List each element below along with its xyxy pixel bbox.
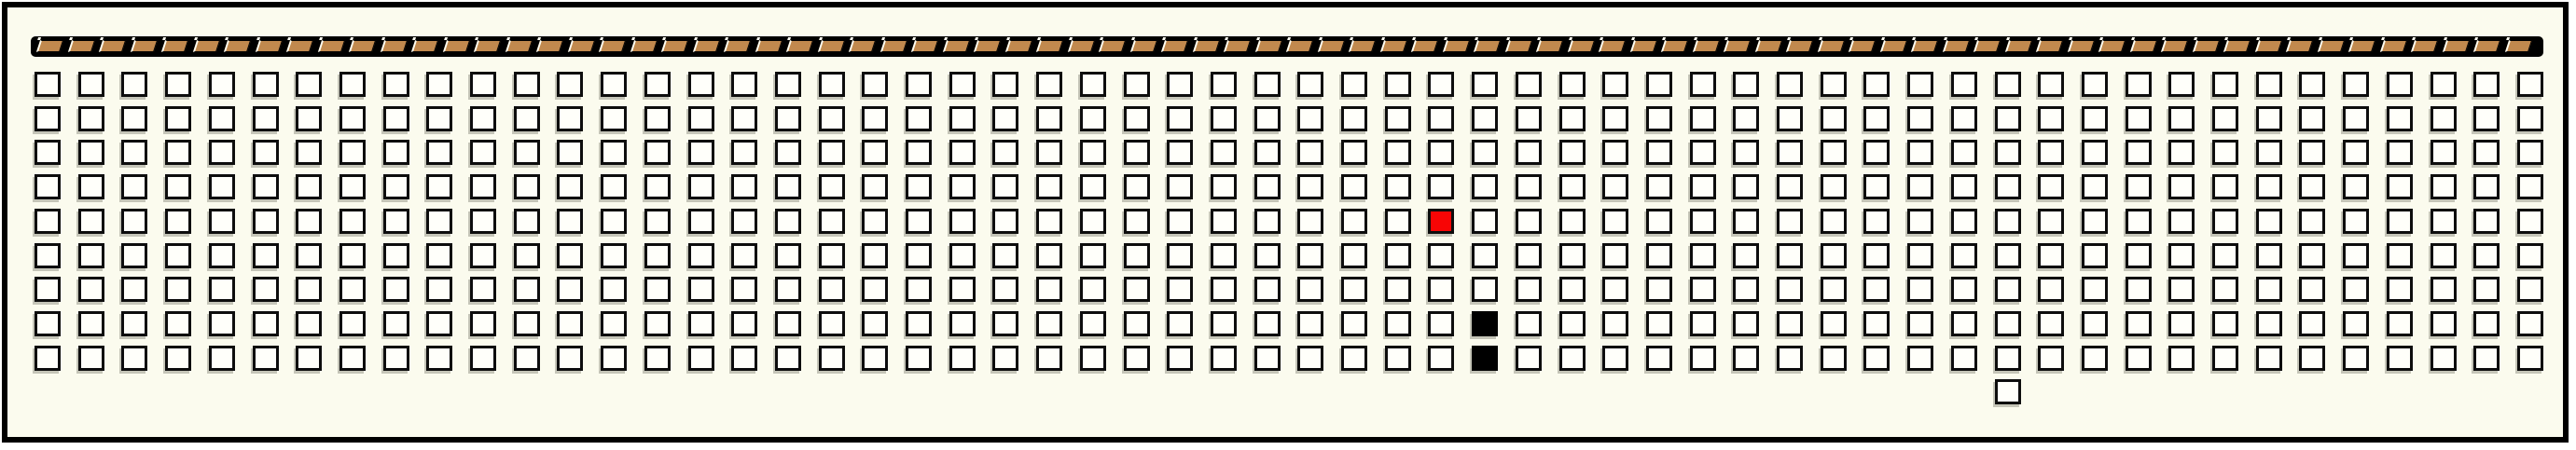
grid-cell[interactable]	[2299, 277, 2325, 302]
grid-cell[interactable]	[2343, 277, 2369, 302]
grid-cell[interactable]	[1602, 174, 1628, 199]
grid-cell[interactable]	[1472, 72, 1498, 97]
grid-cell[interactable]	[426, 209, 452, 234]
grid-cell[interactable]	[2256, 72, 2282, 97]
grid-cell[interactable]	[949, 346, 976, 371]
grid-cell[interactable]	[1297, 106, 1323, 131]
grid-cell[interactable]	[2212, 277, 2238, 302]
grid-cell[interactable]	[2256, 243, 2282, 268]
grid-cell[interactable]	[906, 209, 932, 234]
grid-cell[interactable]	[165, 277, 191, 302]
grid-cell[interactable]	[1690, 140, 1716, 165]
grid-cell[interactable]	[1211, 106, 1237, 131]
grid-cell[interactable]	[2082, 243, 2108, 268]
grid-cell[interactable]	[1036, 174, 1062, 199]
grid-cell[interactable]	[2517, 311, 2543, 336]
grid-cell[interactable]	[862, 311, 888, 336]
grid-cell[interactable]	[1341, 106, 1367, 131]
grid-cell[interactable]	[1341, 174, 1367, 199]
grid-cell[interactable]	[1646, 140, 1672, 165]
grid-cell[interactable]	[819, 140, 845, 165]
grid-cell[interactable]	[1733, 106, 1759, 131]
grid-cell[interactable]	[1907, 140, 1933, 165]
grid-cell[interactable]	[209, 243, 235, 268]
grid-cell[interactable]	[1080, 106, 1106, 131]
grid-cell[interactable]	[2256, 311, 2282, 336]
grid-cell[interactable]	[2473, 277, 2500, 302]
grid-cell[interactable]	[2343, 346, 2369, 371]
grid-cell[interactable]	[819, 311, 845, 336]
grid-cell[interactable]	[949, 311, 976, 336]
grid-cell[interactable]	[2299, 140, 2325, 165]
grid-cell[interactable]	[470, 277, 496, 302]
grid-cell[interactable]	[601, 209, 627, 234]
grid-cell[interactable]	[1863, 72, 1890, 97]
grid-cell[interactable]	[2038, 209, 2064, 234]
grid-cell[interactable]	[2082, 140, 2108, 165]
grid-cell[interactable]	[992, 72, 1018, 97]
grid-cell[interactable]	[2387, 311, 2413, 336]
grid-cell[interactable]	[1777, 209, 1803, 234]
grid-cell[interactable]	[121, 72, 147, 97]
grid-cell[interactable]	[2473, 243, 2500, 268]
grid-cell[interactable]	[296, 174, 322, 199]
grid-cell[interactable]	[209, 311, 235, 336]
grid-cell[interactable]	[1863, 346, 1890, 371]
grid-cell[interactable]	[1297, 72, 1323, 97]
grid-cell[interactable]	[2038, 243, 2064, 268]
grid-cell[interactable]	[35, 106, 61, 131]
grid-cell[interactable]	[1559, 346, 1586, 371]
grid-cell[interactable]	[1080, 277, 1106, 302]
grid-cell[interactable]	[121, 243, 147, 268]
grid-cell[interactable]	[2168, 140, 2195, 165]
grid-cell[interactable]	[1690, 311, 1716, 336]
grid-cell[interactable]	[514, 243, 540, 268]
grid-cell[interactable]	[2082, 106, 2108, 131]
grid-cell[interactable]	[514, 311, 540, 336]
grid-cell[interactable]	[644, 140, 671, 165]
grid-cell[interactable]	[2343, 311, 2369, 336]
grid-cell[interactable]	[383, 277, 409, 302]
grid-cell[interactable]	[906, 106, 932, 131]
grid-cell[interactable]	[2387, 243, 2413, 268]
grid-cell[interactable]	[1124, 346, 1150, 371]
grid-cell[interactable]	[1211, 243, 1237, 268]
grid-cell[interactable]	[557, 209, 583, 234]
grid-cell[interactable]	[1254, 106, 1281, 131]
grid-cell[interactable]	[1777, 277, 1803, 302]
grid-cell[interactable]	[2431, 243, 2457, 268]
grid-cell[interactable]	[2387, 209, 2413, 234]
grid-cell[interactable]	[731, 277, 757, 302]
grid-cell[interactable]	[2256, 209, 2282, 234]
grid-cell[interactable]	[339, 277, 366, 302]
grid-cell[interactable]	[601, 311, 627, 336]
grid-cell[interactable]	[339, 209, 366, 234]
grid-cell[interactable]	[1907, 72, 1933, 97]
grid-cell[interactable]	[775, 72, 801, 97]
grid-cell[interactable]	[1602, 311, 1628, 336]
grid-cell[interactable]	[731, 140, 757, 165]
grid-cell[interactable]	[383, 106, 409, 131]
grid-cell[interactable]	[35, 174, 61, 199]
grid-cell[interactable]	[1341, 209, 1367, 234]
grid-cell[interactable]	[1907, 346, 1933, 371]
grid-cell[interactable]	[1385, 174, 1411, 199]
grid-cell[interactable]	[470, 311, 496, 336]
grid-cell[interactable]	[775, 311, 801, 336]
grid-cell[interactable]	[165, 346, 191, 371]
grid-cell[interactable]	[339, 140, 366, 165]
grid-cell[interactable]	[121, 140, 147, 165]
grid-cell[interactable]	[253, 140, 279, 165]
grid-cell[interactable]	[557, 277, 583, 302]
grid-cell[interactable]	[1341, 346, 1367, 371]
grid-cell[interactable]	[78, 346, 104, 371]
grid-cell[interactable]	[1951, 277, 1977, 302]
grid-cell[interactable]	[1907, 277, 1933, 302]
grid-cell[interactable]	[121, 106, 147, 131]
grid-cell[interactable]	[339, 346, 366, 371]
grid-cell[interactable]	[2473, 72, 2500, 97]
grid-cell[interactable]	[2517, 140, 2543, 165]
grid-cell[interactable]	[819, 277, 845, 302]
grid-cell[interactable]	[2343, 174, 2369, 199]
grid-cell[interactable]	[165, 140, 191, 165]
grid-cell[interactable]	[1821, 140, 1847, 165]
grid-cell[interactable]	[1428, 243, 1454, 268]
grid-cell[interactable]	[2038, 72, 2064, 97]
grid-cell[interactable]	[296, 311, 322, 336]
grid-cell[interactable]	[601, 277, 627, 302]
grid-cell[interactable]	[1036, 243, 1062, 268]
grid-cell[interactable]	[1428, 140, 1454, 165]
grid-cell[interactable]	[2212, 174, 2238, 199]
grid-cell[interactable]	[78, 209, 104, 234]
grid-cell[interactable]	[2126, 346, 2152, 371]
grid-cell[interactable]	[906, 72, 932, 97]
grid-cell[interactable]	[470, 72, 496, 97]
grid-cell[interactable]	[2126, 72, 2152, 97]
grid-cell[interactable]	[296, 106, 322, 131]
grid-cell[interactable]	[470, 209, 496, 234]
grid-cell[interactable]	[1821, 277, 1847, 302]
grid-cell[interactable]	[1777, 311, 1803, 336]
grid-cell[interactable]	[1733, 311, 1759, 336]
grid-cell[interactable]	[121, 209, 147, 234]
grid-cell[interactable]	[35, 346, 61, 371]
grid-cell[interactable]	[1297, 277, 1323, 302]
grid-cell[interactable]	[1080, 209, 1106, 234]
grid-cell[interactable]	[78, 277, 104, 302]
grid-cell[interactable]	[731, 72, 757, 97]
grid-cell[interactable]	[644, 277, 671, 302]
grid-cell[interactable]	[688, 277, 714, 302]
grid-cell[interactable]	[688, 72, 714, 97]
grid-cell[interactable]	[209, 140, 235, 165]
grid-cell[interactable]	[1646, 346, 1672, 371]
grid-cell[interactable]	[906, 311, 932, 336]
grid-cell[interactable]	[2168, 106, 2195, 131]
grid-cell[interactable]	[35, 277, 61, 302]
grid-cell[interactable]	[1124, 209, 1150, 234]
grid-cell[interactable]	[121, 277, 147, 302]
grid-cell[interactable]	[296, 243, 322, 268]
grid-cell[interactable]	[165, 243, 191, 268]
grid-cell[interactable]	[1211, 140, 1237, 165]
grid-cell[interactable]	[644, 243, 671, 268]
grid-cell[interactable]	[1559, 140, 1586, 165]
grid-cell[interactable]	[1516, 174, 1542, 199]
grid-cell[interactable]	[1995, 106, 2021, 131]
grid-cell[interactable]	[1341, 140, 1367, 165]
grid-cell[interactable]	[1777, 72, 1803, 97]
grid-cell[interactable]	[731, 346, 757, 371]
grid-cell[interactable]	[1036, 346, 1062, 371]
grid-cell[interactable]	[383, 140, 409, 165]
grid-cell[interactable]	[2038, 311, 2064, 336]
grid-cell[interactable]	[78, 140, 104, 165]
grid-cell[interactable]	[1863, 243, 1890, 268]
grid-cell[interactable]	[1995, 277, 2021, 302]
grid-cell[interactable]	[1472, 243, 1498, 268]
grid-cell[interactable]	[992, 277, 1018, 302]
grid-cell[interactable]	[514, 277, 540, 302]
grid-cell[interactable]	[296, 346, 322, 371]
grid-cell[interactable]	[78, 243, 104, 268]
grid-cell[interactable]	[1036, 72, 1062, 97]
grid-cell[interactable]	[121, 346, 147, 371]
grid-cell[interactable]	[253, 243, 279, 268]
grid-cell[interactable]	[1516, 140, 1542, 165]
grid-cell[interactable]	[1951, 209, 1977, 234]
grid-cell[interactable]	[426, 72, 452, 97]
grid-cell[interactable]	[2343, 106, 2369, 131]
grid-cell[interactable]	[1254, 174, 1281, 199]
grid-cell[interactable]	[1254, 311, 1281, 336]
grid-cell[interactable]	[209, 174, 235, 199]
grid-cell[interactable]	[1821, 346, 1847, 371]
grid-cell[interactable]	[1080, 243, 1106, 268]
grid-cell[interactable]	[1602, 106, 1628, 131]
grid-cell[interactable]	[78, 72, 104, 97]
grid-cell[interactable]	[1516, 311, 1542, 336]
grid-cell[interactable]	[2168, 174, 2195, 199]
grid-cell[interactable]	[470, 106, 496, 131]
grid-cell[interactable]	[2343, 209, 2369, 234]
grid-cell[interactable]	[2343, 72, 2369, 97]
grid-cell[interactable]	[1733, 346, 1759, 371]
grid-cell[interactable]	[1385, 311, 1411, 336]
grid-cell[interactable]	[1951, 311, 1977, 336]
grid-cell[interactable]	[1559, 209, 1586, 234]
grid-cell[interactable]	[1472, 106, 1498, 131]
grid-cell[interactable]	[1559, 106, 1586, 131]
grid-cell[interactable]	[731, 209, 757, 234]
grid-cell[interactable]	[1211, 209, 1237, 234]
grid-cell[interactable]	[819, 209, 845, 234]
grid-cell[interactable]	[906, 346, 932, 371]
grid-cell[interactable]	[1821, 243, 1847, 268]
grid-cell[interactable]	[949, 140, 976, 165]
grid-cell[interactable]	[1516, 72, 1542, 97]
grid-cell[interactable]	[1995, 243, 2021, 268]
grid-cell[interactable]	[253, 346, 279, 371]
grid-cell[interactable]	[1080, 140, 1106, 165]
grid-cell[interactable]	[339, 106, 366, 131]
grid-cell[interactable]	[1341, 311, 1367, 336]
grid-cell[interactable]	[1167, 72, 1193, 97]
grid-cell[interactable]	[1559, 277, 1586, 302]
grid-cell[interactable]	[1559, 174, 1586, 199]
grid-cell[interactable]	[253, 311, 279, 336]
grid-cell[interactable]	[2082, 72, 2108, 97]
grid-cell[interactable]	[2256, 174, 2282, 199]
grid-cell[interactable]	[1863, 140, 1890, 165]
grid-cell[interactable]	[296, 209, 322, 234]
grid-cell[interactable]	[2387, 106, 2413, 131]
grid-cell[interactable]	[253, 106, 279, 131]
grid-cell[interactable]	[2473, 311, 2500, 336]
grid-cell[interactable]	[2126, 243, 2152, 268]
grid-cell[interactable]	[688, 209, 714, 234]
grid-cell[interactable]	[339, 243, 366, 268]
grid-cell[interactable]	[2517, 174, 2543, 199]
grid-cell[interactable]	[1951, 243, 1977, 268]
grid-cell[interactable]	[426, 277, 452, 302]
grid-cell[interactable]	[470, 174, 496, 199]
grid-cell[interactable]	[1211, 346, 1237, 371]
grid-cell[interactable]	[1690, 209, 1716, 234]
grid-cell[interactable]	[1690, 346, 1716, 371]
grid-cell[interactable]	[1907, 209, 1933, 234]
grid-cell[interactable]	[688, 243, 714, 268]
grid-cell[interactable]	[2082, 346, 2108, 371]
grid-cell[interactable]	[1080, 311, 1106, 336]
grid-cell[interactable]	[862, 277, 888, 302]
grid-cell[interactable]	[862, 72, 888, 97]
grid-cell[interactable]	[1516, 106, 1542, 131]
grid-cell[interactable]	[557, 72, 583, 97]
grid-cell[interactable]	[1036, 209, 1062, 234]
grid-cell[interactable]	[339, 174, 366, 199]
grid-cell[interactable]	[2473, 209, 2500, 234]
grid-cell[interactable]	[2168, 72, 2195, 97]
grid-cell[interactable]	[644, 106, 671, 131]
grid-cell[interactable]	[2168, 209, 2195, 234]
grid-cell[interactable]	[2431, 174, 2457, 199]
grid-cell[interactable]	[2517, 72, 2543, 97]
grid-cell[interactable]	[2473, 346, 2500, 371]
grid-cell[interactable]	[1254, 243, 1281, 268]
grid-cell[interactable]	[514, 106, 540, 131]
grid-cell[interactable]	[1907, 243, 1933, 268]
grid-cell[interactable]	[601, 243, 627, 268]
grid-cell[interactable]	[2212, 209, 2238, 234]
grid-cell[interactable]	[470, 140, 496, 165]
grid-cell[interactable]	[601, 106, 627, 131]
grid-cell[interactable]	[383, 243, 409, 268]
grid-cell[interactable]	[121, 311, 147, 336]
grid-cell[interactable]	[1602, 140, 1628, 165]
grid-cell[interactable]	[514, 346, 540, 371]
grid-cell[interactable]	[383, 174, 409, 199]
grid-cell[interactable]	[2126, 209, 2152, 234]
grid-cell[interactable]	[1472, 277, 1498, 302]
grid-cell[interactable]	[1821, 311, 1847, 336]
grid-cell[interactable]	[1646, 72, 1672, 97]
grid-cell[interactable]	[819, 174, 845, 199]
grid-cell[interactable]	[557, 346, 583, 371]
grid-cell[interactable]	[35, 140, 61, 165]
grid-cell[interactable]	[1428, 106, 1454, 131]
grid-cell[interactable]	[2431, 311, 2457, 336]
grid-cell[interactable]	[688, 140, 714, 165]
grid-cell[interactable]	[514, 72, 540, 97]
grid-cell[interactable]	[644, 209, 671, 234]
grid-cell[interactable]	[1428, 311, 1454, 336]
grid-cell[interactable]	[949, 174, 976, 199]
grid-cell[interactable]	[601, 140, 627, 165]
grid-cell[interactable]	[1385, 346, 1411, 371]
grid-cell[interactable]	[1297, 346, 1323, 371]
grid-cell[interactable]	[1211, 277, 1237, 302]
grid-cell[interactable]	[992, 311, 1018, 336]
grid-cell[interactable]	[339, 311, 366, 336]
grid-cell[interactable]	[2431, 106, 2457, 131]
grid-cell[interactable]	[1733, 277, 1759, 302]
grid-cell[interactable]	[557, 106, 583, 131]
grid-cell[interactable]	[1385, 243, 1411, 268]
grid-cell[interactable]	[253, 209, 279, 234]
grid-cell[interactable]	[1036, 140, 1062, 165]
grid-cell[interactable]	[383, 311, 409, 336]
grid-cell[interactable]	[2038, 174, 2064, 199]
grid-cell[interactable]	[1341, 277, 1367, 302]
grid-cell[interactable]	[731, 106, 757, 131]
grid-cell[interactable]	[2431, 209, 2457, 234]
grid-cell[interactable]	[1297, 311, 1323, 336]
grid-cell[interactable]	[2387, 72, 2413, 97]
grid-cell[interactable]	[1777, 243, 1803, 268]
grid-cell[interactable]	[1995, 346, 2021, 371]
grid-cell[interactable]	[1167, 174, 1193, 199]
grid-cell[interactable]	[992, 106, 1018, 131]
grid-cell[interactable]	[2256, 346, 2282, 371]
grid-cell[interactable]	[1559, 311, 1586, 336]
grid-cell[interactable]	[1995, 174, 2021, 199]
grid-cell[interactable]	[383, 72, 409, 97]
grid-cell[interactable]	[1167, 140, 1193, 165]
grid-cell[interactable]	[1472, 140, 1498, 165]
orphan-cell[interactable]	[1995, 379, 2021, 404]
grid-cell[interactable]	[1297, 174, 1323, 199]
grid-cell[interactable]	[165, 106, 191, 131]
grid-cell[interactable]	[688, 174, 714, 199]
grid-cell[interactable]	[1863, 311, 1890, 336]
grid-cell[interactable]	[949, 277, 976, 302]
grid-cell[interactable]	[1516, 243, 1542, 268]
grid-cell[interactable]	[1428, 72, 1454, 97]
grid-cell[interactable]	[1777, 174, 1803, 199]
grid-cell[interactable]	[2126, 277, 2152, 302]
grid-cell[interactable]	[1516, 209, 1542, 234]
grid-cell[interactable]	[731, 243, 757, 268]
grid-cell[interactable]	[644, 311, 671, 336]
grid-cell[interactable]	[819, 243, 845, 268]
grid-cell[interactable]	[1385, 277, 1411, 302]
